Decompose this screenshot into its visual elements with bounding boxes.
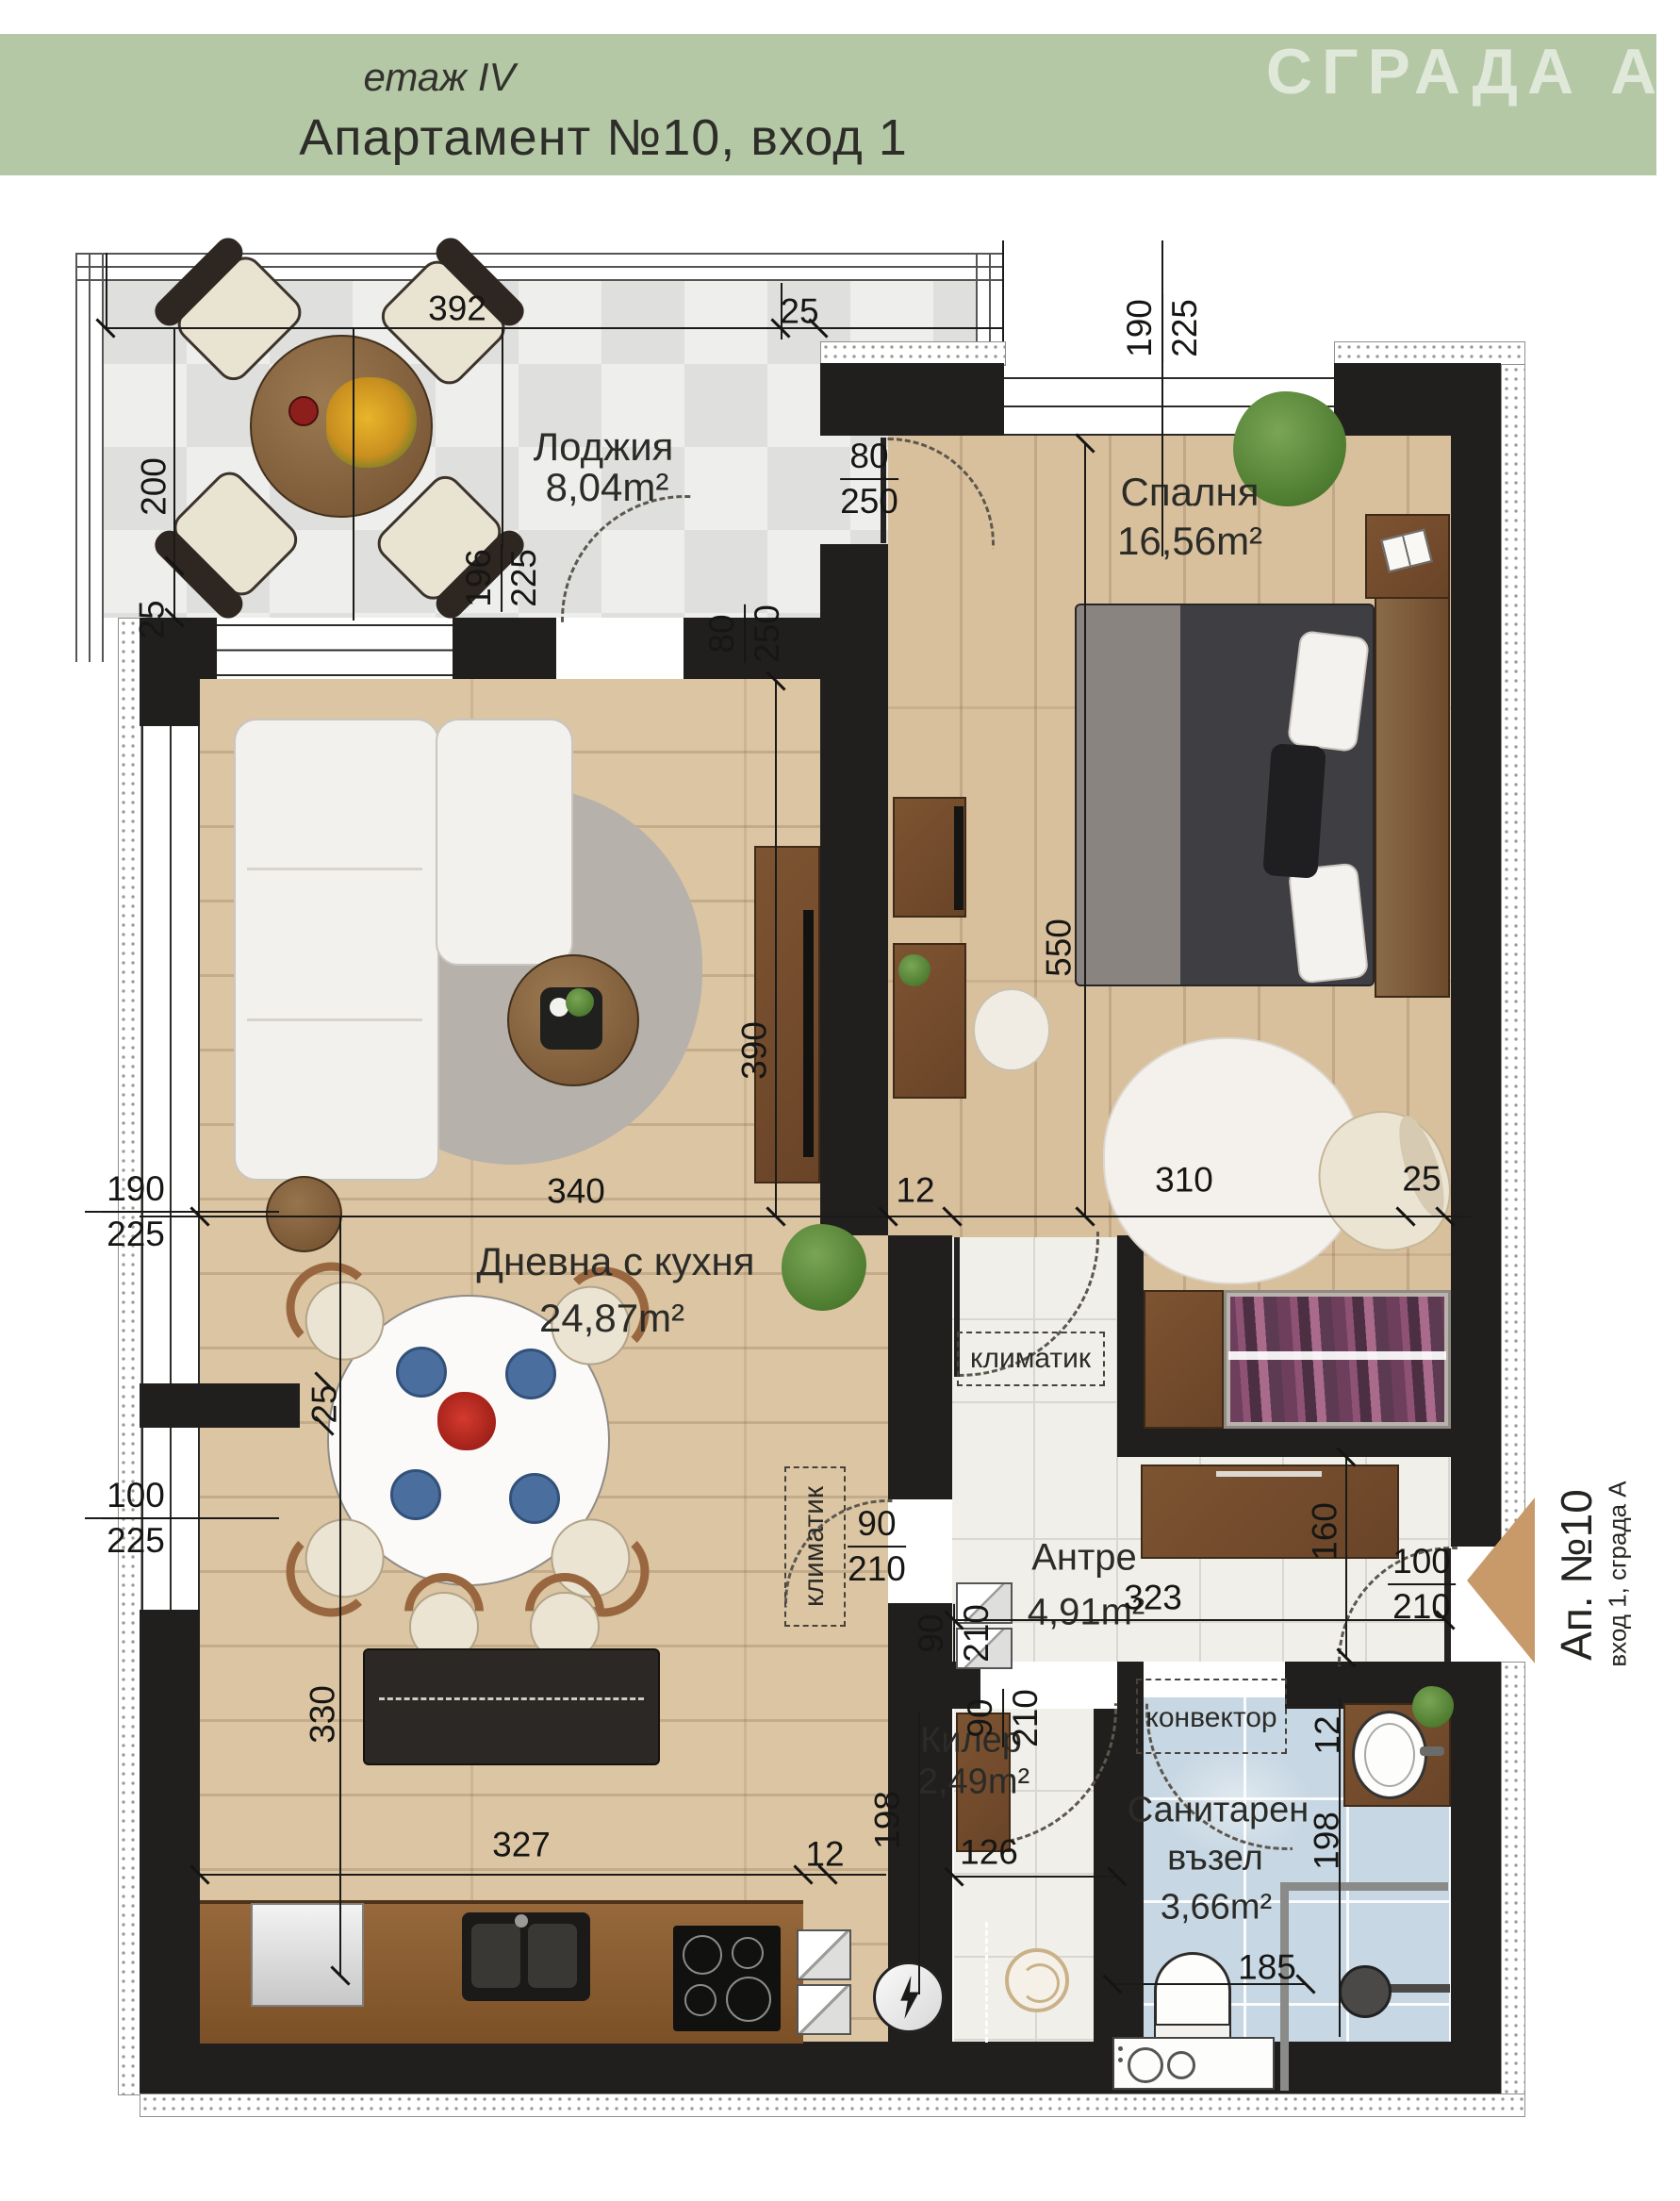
sofa-cushion-line [247, 1018, 422, 1021]
faucet-icon [1420, 1746, 1444, 1756]
shower-arm [1384, 1984, 1450, 1993]
dim-327: 327 [492, 1828, 551, 1862]
dim-line [106, 327, 1002, 329]
island-chair [404, 1573, 484, 1652]
room-label-bath-1: Санитарен [1128, 1791, 1309, 1831]
electrical-shaft-icon [873, 1961, 945, 2033]
kitchen-island [363, 1648, 660, 1765]
dim-25-loggia: 25 [135, 600, 170, 638]
bedroom-tv-icon [954, 806, 964, 910]
dim-185: 185 [1238, 1950, 1296, 1985]
dim-line [200, 1874, 886, 1876]
plate [396, 1347, 447, 1398]
wall [453, 618, 556, 679]
insulation-hatch [140, 2093, 1525, 2117]
dim-12-bath: 12 [1310, 1715, 1345, 1754]
building-label: СГРАДА А [1266, 35, 1666, 108]
shower-partition [1280, 1882, 1289, 2091]
sofa [234, 719, 439, 1181]
room-label-bedroom: Спалня [1121, 470, 1260, 515]
fridge [251, 1903, 364, 2007]
dim-12-mid: 12 [896, 1173, 934, 1208]
boiler-icon [1005, 1948, 1069, 2012]
dim-160: 160 [1308, 1502, 1342, 1561]
wall [820, 544, 888, 1235]
dim-door-90-210-storage: 90 210 [913, 1604, 996, 1663]
tv-icon [803, 910, 814, 1157]
room-label-living: Дневна с кухня [477, 1239, 755, 1284]
dim-550: 550 [1042, 918, 1077, 977]
room-label-bath-2: възел [1167, 1839, 1263, 1879]
dim-door-90-210-hall: 90 210 [848, 1505, 906, 1588]
page-title: Апартамент №10, вход 1 [299, 108, 907, 167]
wall-pier [140, 1383, 300, 1428]
dim-25-right: 25 [1402, 1162, 1441, 1197]
dim-window-100-225-left: 100 225 [102, 1477, 170, 1560]
wall [200, 618, 217, 679]
plate [390, 1469, 441, 1520]
room-area-bath: 3,66m² [1161, 1888, 1272, 1928]
dim-198-storage: 198 [870, 1791, 905, 1849]
desk-chair [973, 988, 1050, 1071]
stove [673, 1926, 781, 2031]
room-area-storage: 2,49m² [918, 1762, 1029, 1803]
wardrobe-rail-unit [1224, 1290, 1451, 1429]
wall [140, 2042, 1501, 2093]
cabinet-symbol [797, 1929, 851, 1980]
wall [1117, 1235, 1144, 1457]
insulation-hatch [1501, 1662, 1525, 2095]
dim-entry-100-210: 100 210 [1388, 1543, 1456, 1626]
wall [820, 363, 1004, 436]
shower-partition [1280, 1882, 1448, 1891]
kitchen-sink [462, 1912, 590, 2001]
bed-headboard [1375, 592, 1450, 998]
loggia-railing [102, 253, 104, 662]
storage-dashed-divider [985, 1922, 990, 2043]
insulation-hatch [118, 618, 141, 2095]
wall [140, 1610, 200, 2093]
sofa-chaise [436, 719, 573, 966]
dresser-handle [1216, 1471, 1322, 1477]
dim-line [918, 1712, 920, 1994]
wall [1451, 1662, 1501, 2093]
plate [505, 1349, 556, 1399]
dim-line [173, 328, 175, 618]
dim-line [954, 1876, 1117, 1878]
wall [888, 1235, 952, 1499]
dim-323: 323 [1124, 1580, 1182, 1615]
convector-label: конвектор [1145, 1702, 1276, 1734]
dim-392: 392 [428, 291, 486, 326]
dim-310: 310 [1155, 1163, 1213, 1198]
dim-330: 330 [305, 1685, 340, 1744]
loggia-window [217, 624, 453, 676]
wardrobe-rail [1228, 1351, 1446, 1360]
washing-machine-icon [1112, 2037, 1275, 2090]
side-table [266, 1176, 342, 1252]
dim-line [339, 1216, 341, 1976]
header-floor-label: етаж IV [363, 55, 515, 100]
floor-plan-page: етаж IV Апартамент №10, вход 1 СГРАДА А [0, 0, 1680, 2201]
dim-25-top: 25 [780, 294, 818, 329]
dim-line [502, 328, 503, 547]
wall [1285, 1662, 1343, 1709]
dim-door-90-210-bath: 90 210 [962, 1689, 1045, 1747]
room-area-living: 24,87m² [539, 1296, 684, 1341]
ac-unit-label: климатик [799, 1486, 831, 1607]
dim-line [1161, 240, 1163, 556]
room-area-loggia: 8,04m² [546, 465, 669, 510]
plate [509, 1473, 560, 1524]
room-label-hall: Антре [1031, 1537, 1137, 1580]
dim-200: 200 [137, 457, 172, 516]
shower-head-icon [1339, 1965, 1392, 2018]
wall [1117, 1428, 1451, 1457]
bath-sink [1352, 1711, 1427, 1799]
dim-line [1002, 240, 1004, 341]
loggia-railing [89, 253, 91, 662]
dim-line [1084, 443, 1086, 1216]
insulation-hatch [1501, 364, 1525, 1548]
sofa-cushion-line [247, 868, 422, 870]
island-dashed-line [379, 1697, 644, 1700]
wardrobe-cabinet [1144, 1290, 1224, 1429]
living-window-large [141, 726, 200, 1383]
dim-196-225: 196 225 [460, 544, 543, 612]
dim-line [1345, 1457, 1347, 1658]
dim-line [954, 1619, 1445, 1621]
room-area-bedroom: 16,56m² [1117, 519, 1262, 564]
dim-line [775, 681, 777, 1216]
dim-line [106, 253, 107, 328]
dim-126: 126 [960, 1835, 1018, 1870]
cup [288, 396, 319, 426]
dim-door-80-250-living: 80 250 [703, 604, 786, 663]
dim-window-190-225-left: 190 225 [102, 1170, 170, 1253]
dim-25-pier: 25 [307, 1384, 342, 1423]
hall-dresser [1141, 1465, 1399, 1559]
dim-198-bath: 198 [1309, 1812, 1344, 1870]
dim-line [353, 328, 354, 621]
ac-unit-label: климатик [970, 1343, 1091, 1375]
dim-window-190-225: 190 225 [1121, 294, 1204, 362]
loggia-railing [75, 253, 77, 662]
pillow [1288, 862, 1369, 984]
flowers-red [437, 1392, 496, 1450]
pillow [1287, 630, 1370, 753]
entrance-apartment-label: Ап. №10 [1551, 1489, 1602, 1661]
island-chair [525, 1573, 604, 1652]
wall [1451, 363, 1501, 1547]
dim-12-kitchen: 12 [805, 1837, 844, 1872]
cabinet-symbol [797, 1984, 851, 2035]
entrance-sub-label: вход 1, сграда А [1604, 1481, 1633, 1666]
dim-390: 390 [737, 1021, 772, 1080]
room-label-loggia: Лоджия [534, 424, 674, 470]
dim-340: 340 [547, 1174, 605, 1209]
pillow-dark [1262, 743, 1326, 879]
dim-door-80-250-bedroom: 80 250 [840, 438, 898, 521]
